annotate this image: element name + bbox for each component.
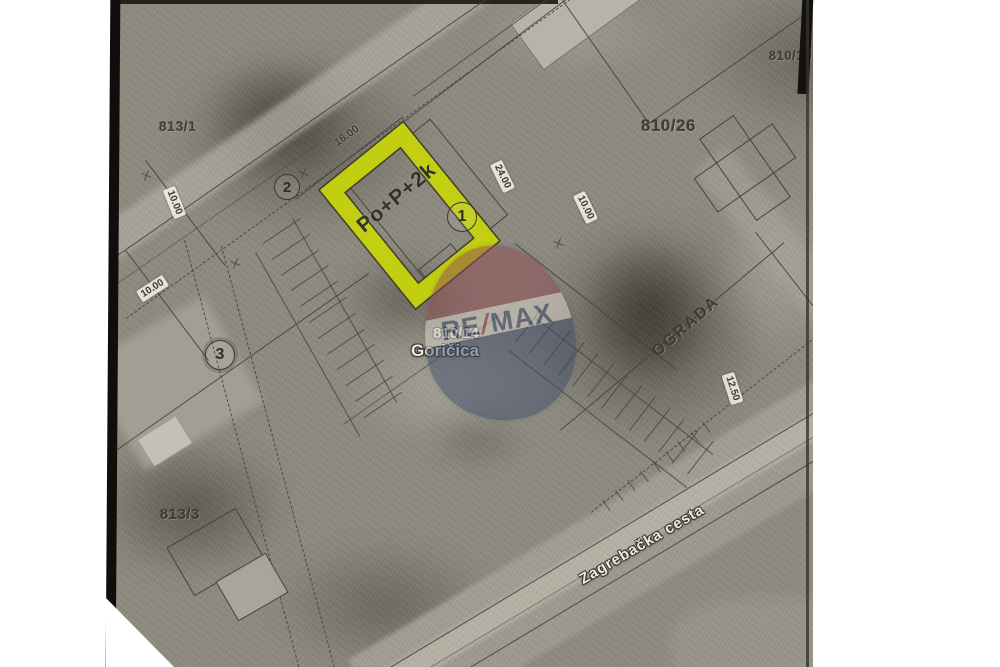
remax-slash: / xyxy=(480,308,491,341)
remax-watermark: RE/MAX xyxy=(405,233,595,446)
scanned-site-plan: Po+P+2k 1 2 3 813/1 810/1b 810/26 810/14… xyxy=(0,0,1000,667)
site-marker-1: 1 xyxy=(447,202,477,232)
cadastral-map: Po+P+2k 1 2 3 813/1 810/1b 810/26 810/14… xyxy=(113,0,813,667)
scan-edge-right xyxy=(806,0,809,667)
parcel-label-813-3: 813/3 xyxy=(160,506,200,523)
parcel-label-813-1: 813/1 xyxy=(159,118,197,134)
site-marker-3: 3 xyxy=(205,340,235,370)
parcel-label-810-26: 810/26 xyxy=(641,116,696,136)
scan-edge-top xyxy=(113,0,558,4)
site-marker-2: 2 xyxy=(274,174,300,200)
